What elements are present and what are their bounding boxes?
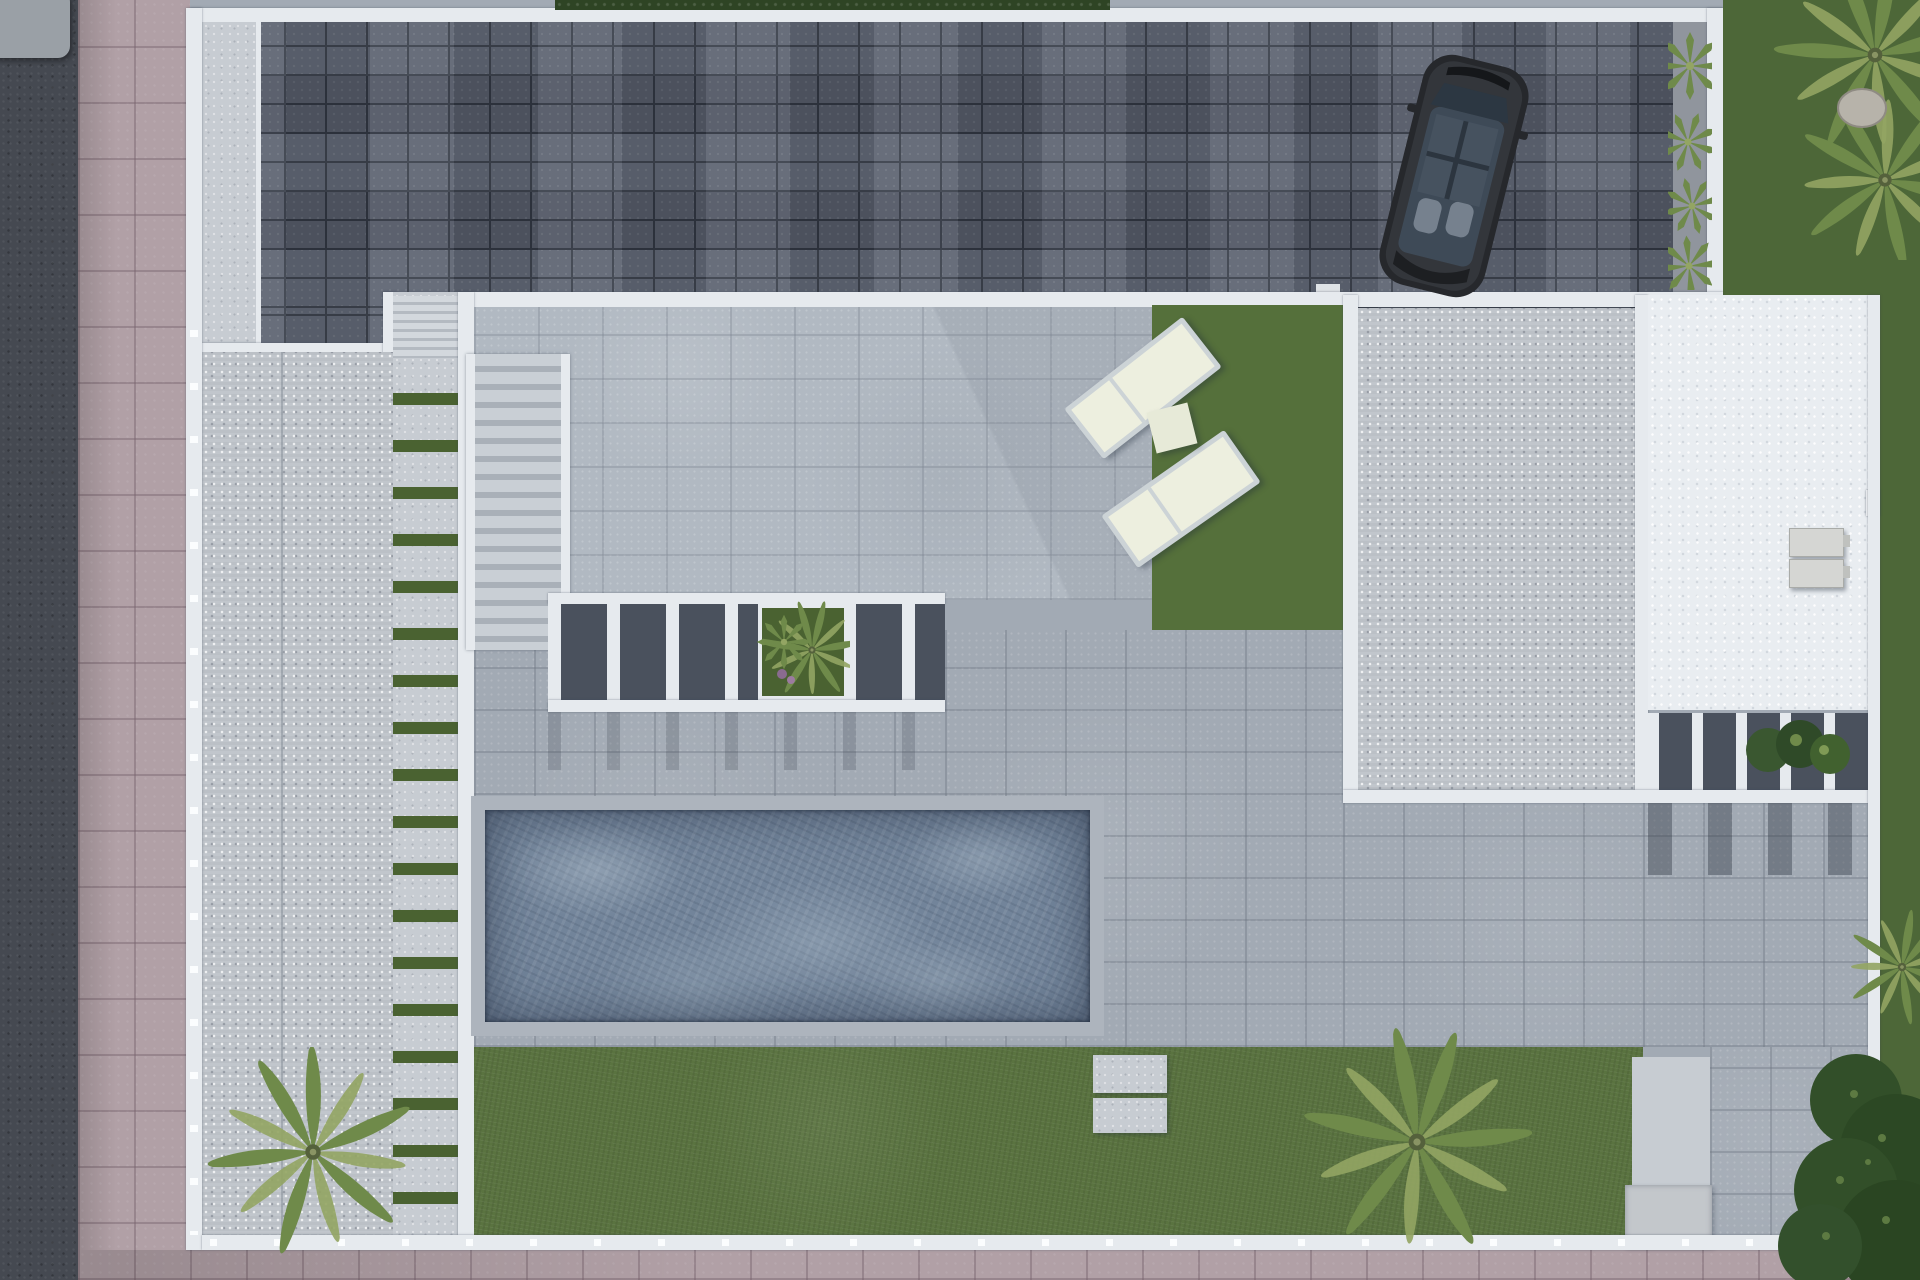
corner-bush bbox=[1736, 1010, 1920, 1280]
ac-unit-1 bbox=[1789, 528, 1844, 557]
ac-unit-2 bbox=[1789, 559, 1844, 588]
corner-steps bbox=[1632, 1057, 1710, 1185]
pergola-right-shadow bbox=[1648, 803, 1868, 875]
lounger-backrest-divider bbox=[1109, 378, 1145, 423]
white-roof-terrace bbox=[1648, 295, 1868, 710]
pergola-top-beam bbox=[548, 593, 945, 604]
garden-rock bbox=[1838, 89, 1886, 127]
terrace-diagonal-shade bbox=[895, 307, 1152, 600]
pink-sidewalk bbox=[78, 0, 190, 1280]
pergola-slats bbox=[548, 604, 945, 700]
roof-divider-beam bbox=[1635, 295, 1648, 790]
palm-tree-right bbox=[1302, 1027, 1532, 1257]
swimming-pool bbox=[485, 810, 1090, 1022]
garage-roof bbox=[1358, 308, 1635, 790]
palm-tree-left bbox=[208, 1047, 418, 1257]
street-parked-object bbox=[0, 0, 70, 58]
lounger-backrest-divider bbox=[1147, 487, 1181, 534]
bottom-fence-posts bbox=[210, 1239, 1870, 1246]
pergola-right-plants bbox=[1738, 710, 1854, 794]
asphalt-street bbox=[0, 0, 78, 1280]
pergola-bottom-beam bbox=[548, 700, 945, 712]
stepping-stone-1 bbox=[1093, 1055, 1167, 1093]
gravel-bed-plants bbox=[1668, 30, 1712, 290]
stepping-stone-2 bbox=[1093, 1098, 1167, 1133]
corner-plants-top-right bbox=[1770, 0, 1920, 260]
inner-top-wall bbox=[383, 292, 1723, 307]
house-roof-wall bbox=[1343, 295, 1358, 790]
pergola-shadow bbox=[548, 712, 945, 770]
top-hedge bbox=[555, 0, 1110, 10]
left-fence-posts bbox=[190, 330, 198, 1235]
entry-path bbox=[202, 22, 261, 352]
walkway-entry-steps bbox=[393, 296, 458, 358]
aerial-villa-render bbox=[0, 0, 1920, 1280]
pergola-planter-plant bbox=[756, 598, 850, 702]
right-edge-sprigs bbox=[1836, 905, 1920, 1035]
